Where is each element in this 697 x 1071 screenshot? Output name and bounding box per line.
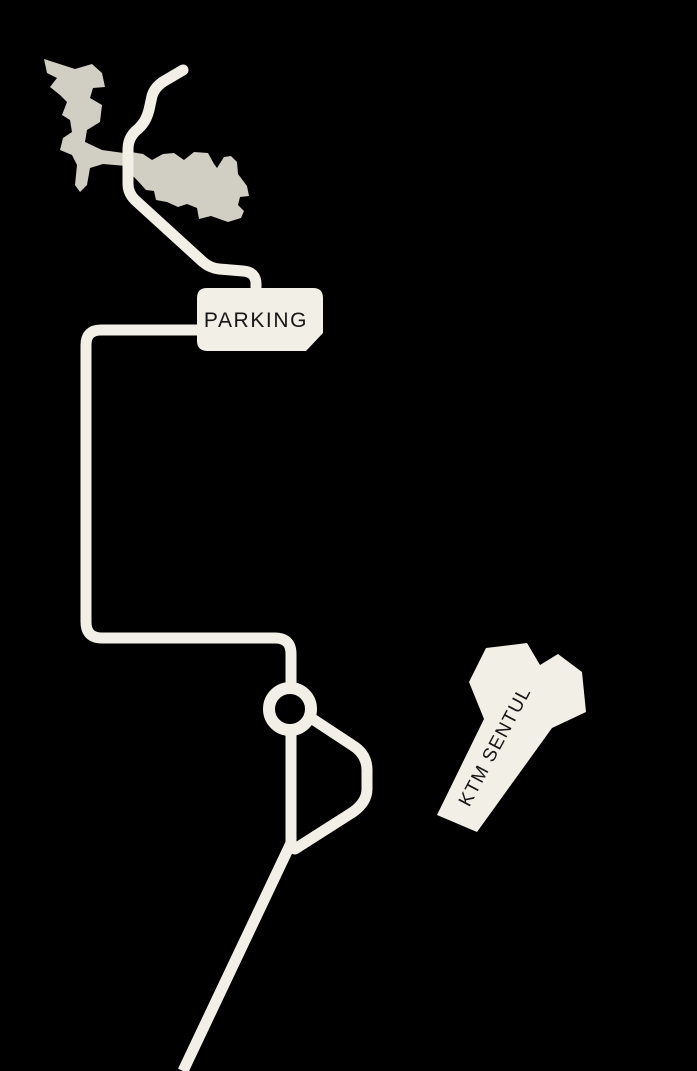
roundabout-circle: [269, 688, 311, 730]
map-canvas: PARKING KTM SENTUL: [0, 0, 697, 1071]
map-svg: PARKING KTM SENTUL: [0, 0, 697, 1071]
parking-label: PARKING: [204, 309, 308, 332]
